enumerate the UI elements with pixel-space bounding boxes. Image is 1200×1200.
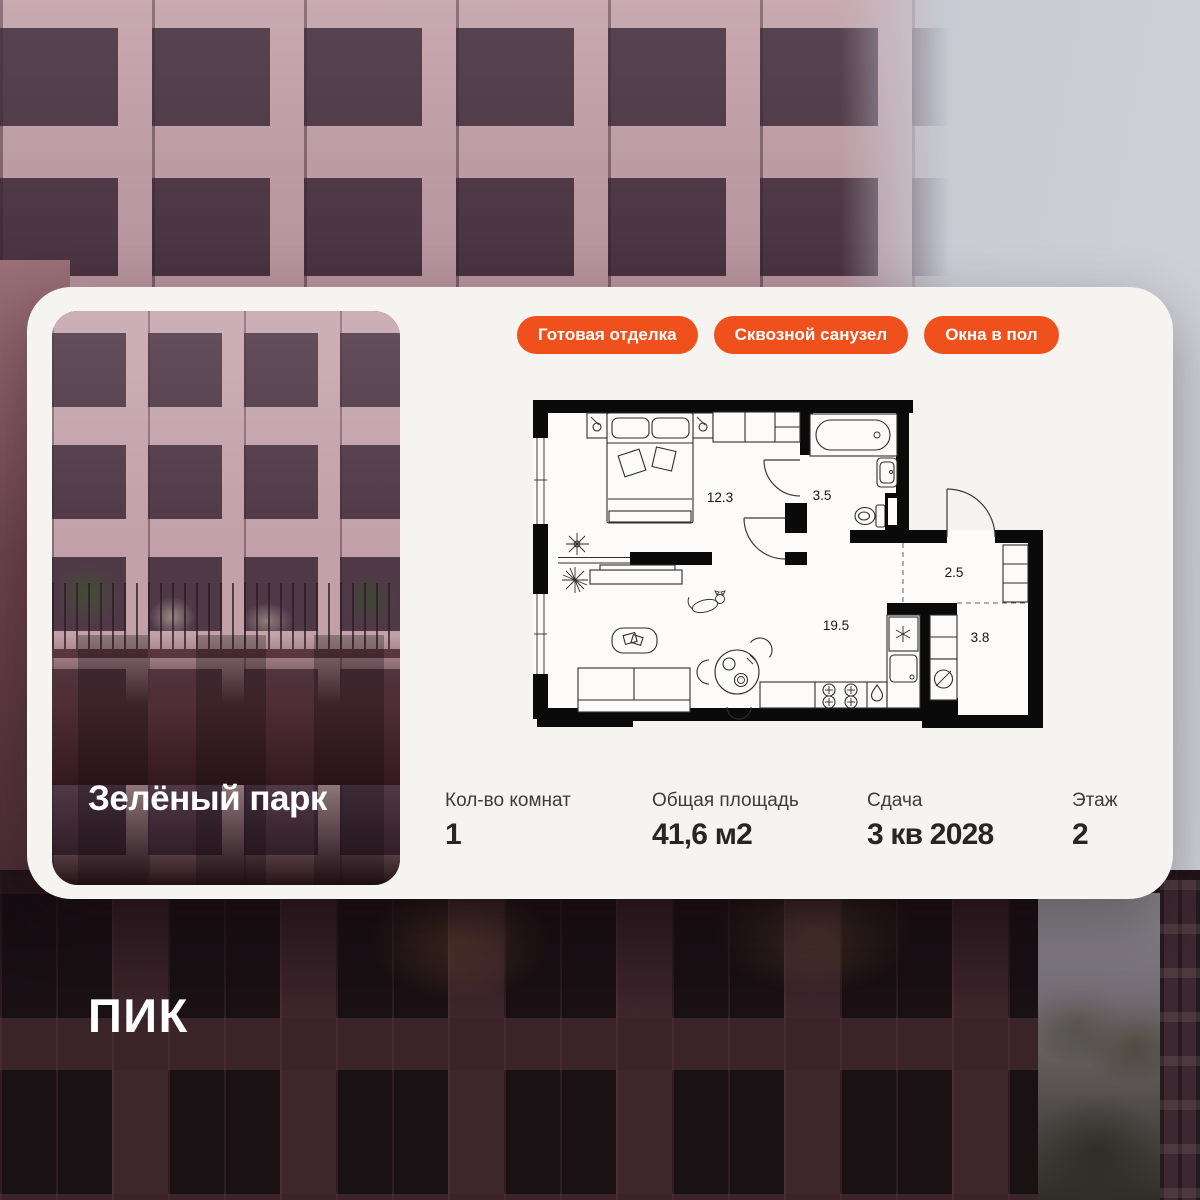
badge-windows[interactable]: Окна в пол [924, 316, 1058, 354]
sofa-icon [578, 668, 690, 712]
bed-icon [607, 413, 693, 523]
fridge-icon [889, 617, 918, 651]
building-facade-top-photo [0, 0, 952, 292]
project-photo-card: Зелёный парк [52, 311, 400, 885]
badge-bathroom[interactable]: Сквозной санузел [714, 316, 909, 354]
stat-completion-label: Сдача [867, 789, 993, 813]
stat-rooms-label: Кол-во комнат [445, 789, 571, 813]
stat-completion-value: 3 кв 2028 [867, 816, 993, 854]
stat-floor: Этаж 2 [1072, 789, 1117, 854]
bathtub-icon [810, 414, 897, 456]
room-label-laundry: 3.8 [971, 630, 990, 645]
tv-console-icon [590, 565, 682, 584]
park-view-photo [1038, 893, 1168, 1200]
room-label-bathroom: 3.5 [813, 488, 832, 503]
floorplan: 12.3 3.5 2.5 19.5 3.8 [533, 394, 1045, 739]
entry-door [947, 489, 995, 543]
nightstand-right-icon [693, 413, 713, 438]
photo-lower-floors [52, 635, 400, 885]
nightstand-left-icon [587, 413, 607, 438]
floorplan-svg: 12.3 3.5 2.5 19.5 3.8 [533, 394, 1045, 739]
stat-completion: Сдача 3 кв 2028 [867, 789, 993, 854]
badge-finish[interactable]: Готовая отделка [517, 316, 698, 354]
project-name-label: Зелёный парк [88, 779, 327, 819]
neighbor-building-photo [1160, 880, 1200, 1200]
washing-machine-icon [930, 659, 957, 700]
stat-area: Общая площадь 41,6 м2 [652, 789, 799, 854]
coffee-table-icon [612, 628, 657, 653]
stat-rooms-value: 1 [445, 816, 571, 854]
stat-rooms: Кол-во комнат 1 [445, 789, 571, 854]
bathroom-sink-icon [877, 458, 897, 487]
room-label-bedroom: 12.3 [707, 490, 733, 505]
kitchen-sink-icon [890, 655, 917, 682]
laundry-cabinet [930, 615, 957, 659]
room-label-living: 19.5 [823, 618, 849, 633]
developer-logo: ПИК [88, 988, 189, 1043]
stat-floor-value: 2 [1072, 816, 1117, 854]
feature-badges-row: Готовая отделка Сквозной санузел Окна в … [517, 316, 1059, 354]
hall-wardrobe-icon [1003, 545, 1028, 602]
stat-floor-label: Этаж [1072, 789, 1117, 813]
listing-card[interactable]: Зелёный парк Готовая отделка Сквозной са… [27, 287, 1173, 899]
room-label-hallway: 2.5 [945, 565, 964, 580]
stat-area-label: Общая площадь [652, 789, 799, 813]
toilet-icon [855, 505, 885, 527]
wardrobe-icon [713, 412, 800, 442]
duct-shaft [885, 493, 900, 530]
stat-area-value: 41,6 м2 [652, 816, 799, 854]
